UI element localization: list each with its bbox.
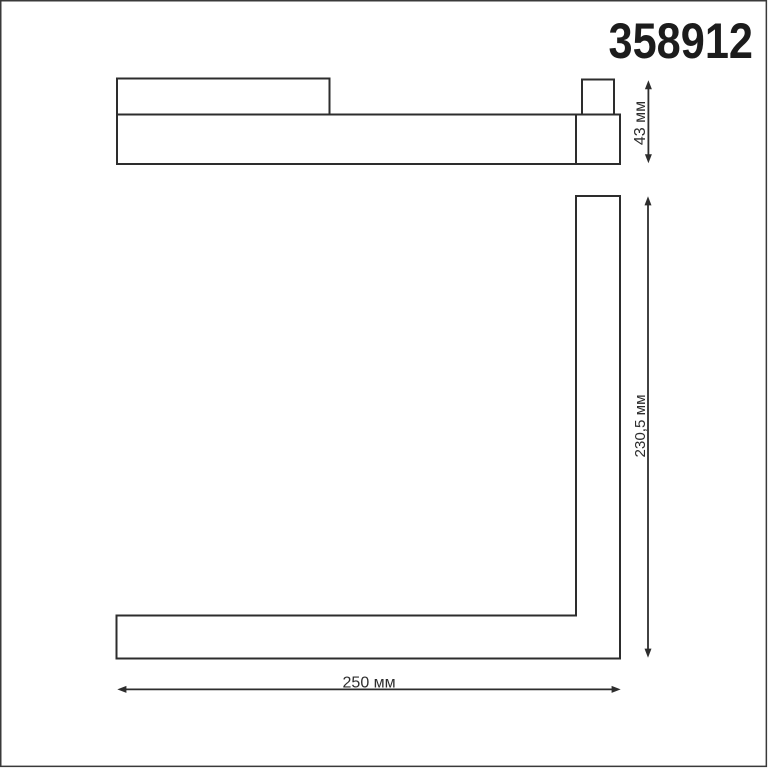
svg-text:250 мм: 250 мм: [343, 675, 396, 692]
svg-text:358912: 358912: [609, 13, 753, 69]
svg-text:230,5 мм: 230,5 мм: [632, 394, 649, 457]
svg-text:43 мм: 43 мм: [632, 101, 649, 145]
